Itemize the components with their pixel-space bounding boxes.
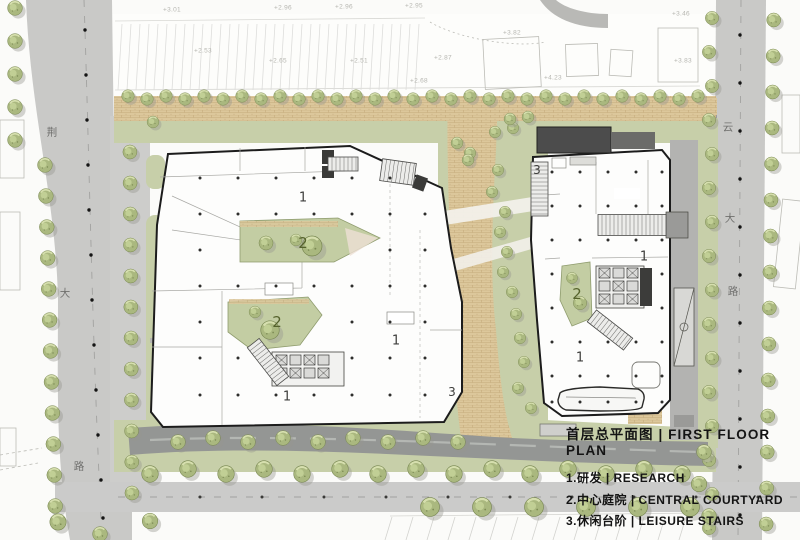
east-road-label-char: 路 bbox=[728, 284, 739, 299]
curved-canopy bbox=[558, 387, 644, 411]
north-parking-lot bbox=[112, 14, 718, 98]
legend-item-stairs: 3.休闲台阶 | LEISURE STAIRS bbox=[566, 511, 800, 533]
east-road-label-char: 大 bbox=[725, 211, 736, 226]
level-annotation: +2.51 bbox=[350, 58, 368, 65]
entrance-canopy bbox=[537, 127, 611, 153]
legend-item-courtyard: 2.中心庭院 | CENTRAL COURTYARD bbox=[566, 490, 800, 512]
level-annotation: +2.96 bbox=[274, 5, 292, 12]
level-annotation: +2.65 bbox=[269, 58, 287, 65]
west-road-label-char: 大 bbox=[60, 286, 71, 301]
legend-item-research: 1.研发 | RESEARCH bbox=[566, 468, 800, 490]
level-annotation: +2.68 bbox=[410, 78, 428, 85]
zone-label-courtyard: 2 bbox=[572, 285, 582, 303]
zone-label-research: 1 bbox=[576, 351, 584, 366]
title-block: 首层总平面图 | FIRST FLOOR PLAN 1.研发 | RESEARC… bbox=[566, 423, 800, 533]
level-annotation: +2.87 bbox=[434, 55, 452, 62]
left-building bbox=[151, 146, 462, 427]
zone-label-courtyard: 2 bbox=[272, 313, 282, 331]
zone-label-research: 1 bbox=[299, 191, 307, 206]
level-annotation: +3.01 bbox=[163, 7, 181, 14]
level-annotation: +2.53 bbox=[194, 48, 212, 55]
zone-label-courtyard: 2 bbox=[298, 234, 308, 252]
level-annotation: +2.95 bbox=[405, 3, 423, 10]
level-annotation: +3.82 bbox=[503, 30, 521, 37]
level-annotation: +3.46 bbox=[672, 11, 690, 18]
east-road-label-char: 云 bbox=[723, 120, 734, 135]
site-plan-canvas: 荆 大 路 云 大 路 1 2 2 1 1 3 3 1 2 1 +3.01 +2… bbox=[0, 0, 800, 540]
zone-label-stairs: 3 bbox=[533, 163, 541, 177]
zone-label-research: 1 bbox=[640, 250, 648, 265]
zone-label-stairs: 3 bbox=[448, 385, 456, 399]
level-annotation: +2.96 bbox=[335, 4, 353, 11]
west-road-label-char: 荆 bbox=[47, 125, 58, 140]
level-annotation: +4.23 bbox=[544, 75, 562, 82]
zone-label-research: 1 bbox=[283, 390, 291, 405]
level-annotation: +3.83 bbox=[674, 58, 692, 65]
zone-label-research: 1 bbox=[392, 334, 400, 349]
west-road-label-char: 路 bbox=[74, 459, 85, 474]
plan-title: 首层总平面图 | FIRST FLOOR PLAN bbox=[566, 423, 800, 458]
